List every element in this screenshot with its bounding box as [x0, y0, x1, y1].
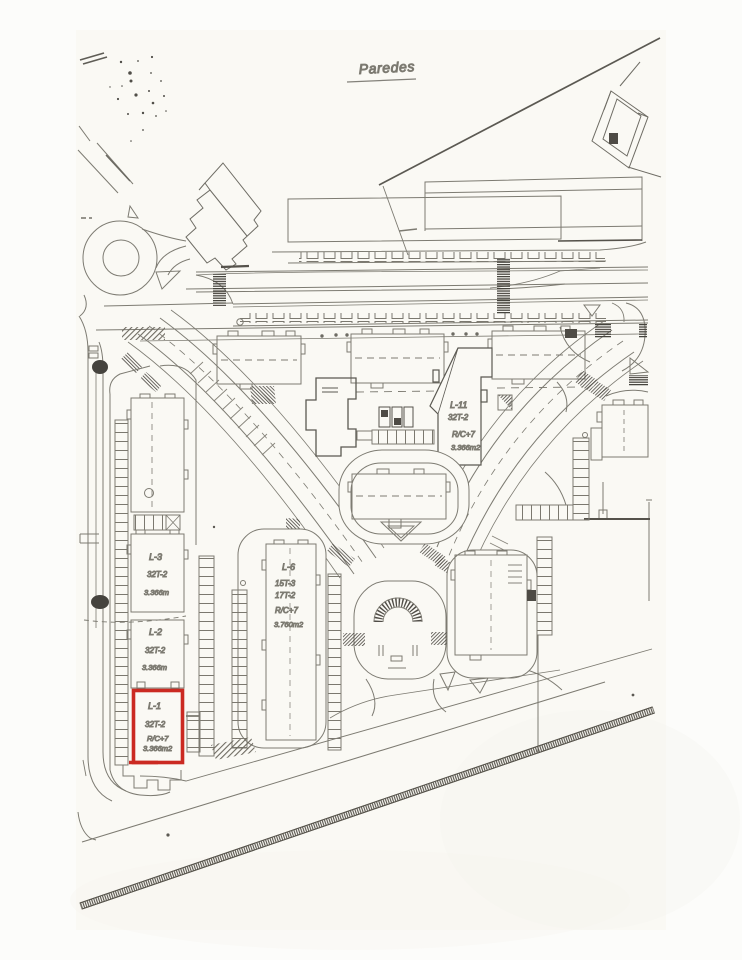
svg-text:32T-2: 32T-2	[147, 570, 168, 579]
svg-text:32T-2: 32T-2	[145, 646, 166, 655]
svg-text:3.366m2: 3.366m2	[143, 744, 173, 753]
svg-text:3.366m2: 3.366m2	[451, 443, 481, 452]
svg-text:3.366m: 3.366m	[144, 588, 169, 597]
svg-text:L-2: L-2	[149, 627, 162, 637]
svg-text:R/C+7: R/C+7	[452, 430, 475, 439]
svg-text:17T-2: 17T-2	[275, 591, 296, 600]
svg-text:L-1: L-1	[148, 701, 161, 711]
svg-text:15T-3: 15T-3	[275, 579, 296, 588]
svg-text:32T-2: 32T-2	[448, 413, 469, 422]
svg-text:R/C+7: R/C+7	[147, 734, 169, 743]
svg-text:L-11: L-11	[450, 400, 467, 410]
svg-text:3.366m: 3.366m	[142, 663, 167, 672]
svg-text:L-6: L-6	[282, 562, 295, 572]
svg-text:L-3: L-3	[149, 552, 162, 562]
svg-text:3.760m2: 3.760m2	[274, 620, 304, 629]
svg-text:32T-2: 32T-2	[145, 720, 166, 729]
svg-text:Paredes: Paredes	[358, 58, 415, 77]
svg-text:R/C+7: R/C+7	[275, 606, 298, 615]
